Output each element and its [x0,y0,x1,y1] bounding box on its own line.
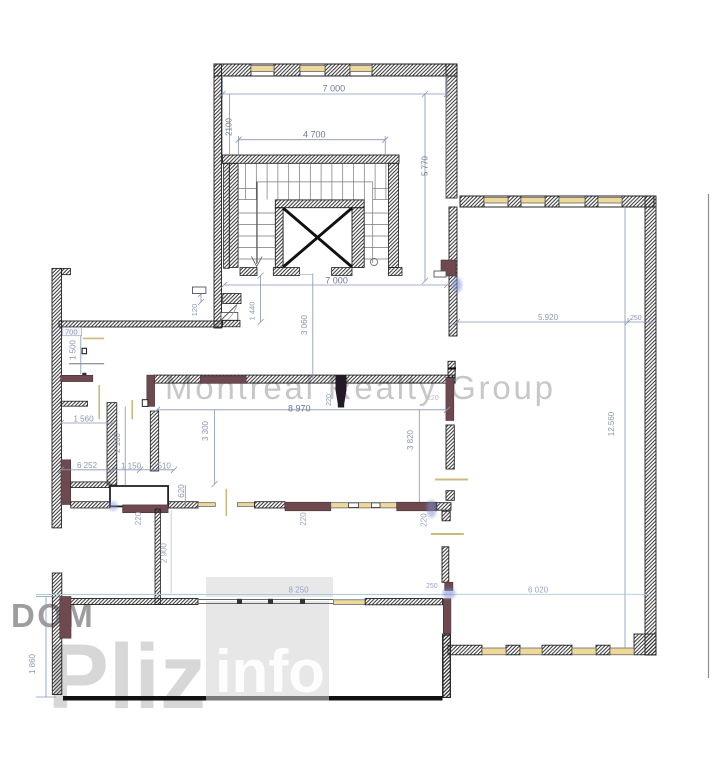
svg-text:220: 220 [299,512,308,526]
svg-text:4 700: 4 700 [303,130,326,140]
svg-text:220: 220 [427,395,439,402]
svg-text:2100: 2100 [225,118,234,136]
svg-text:12.560: 12.560 [607,411,616,436]
svg-text:1 440: 1 440 [248,302,257,321]
svg-text:7 000: 7 000 [323,84,346,94]
svg-text:1 500: 1 500 [69,339,78,360]
svg-text:250: 250 [630,315,642,322]
svg-text:5.920: 5.920 [538,313,559,322]
svg-text:120: 120 [190,304,199,317]
svg-text:3 300: 3 300 [201,420,210,441]
svg-text:3 820: 3 820 [406,429,415,450]
svg-text:Pliz: Pliz [48,626,206,728]
svg-text:2 160: 2 160 [113,432,122,453]
svg-text:220: 220 [420,513,429,527]
svg-text:1 860: 1 860 [28,653,37,674]
svg-text:5 770: 5 770 [421,155,430,176]
svg-text:7 000: 7 000 [325,276,348,286]
svg-text:Montreal Realty Group: Montreal Realty Group [165,369,556,406]
svg-text:8 250: 8 250 [289,586,310,595]
svg-text:info: info [215,638,325,705]
svg-text:250: 250 [426,583,438,590]
svg-text:8 970: 8 970 [288,404,311,414]
svg-text:220: 220 [134,511,143,525]
svg-text:3 060: 3 060 [300,314,309,335]
svg-text:6 252: 6 252 [77,461,98,470]
svg-text:2 900: 2 900 [160,542,169,563]
svg-text:620: 620 [177,484,186,498]
svg-text:220: 220 [326,394,333,406]
svg-text:1 560: 1 560 [74,415,95,424]
svg-text:510: 510 [158,462,172,471]
svg-text:1 150: 1 150 [121,462,142,471]
svg-text:6 020: 6 020 [528,586,549,595]
svg-text:700: 700 [65,328,78,337]
